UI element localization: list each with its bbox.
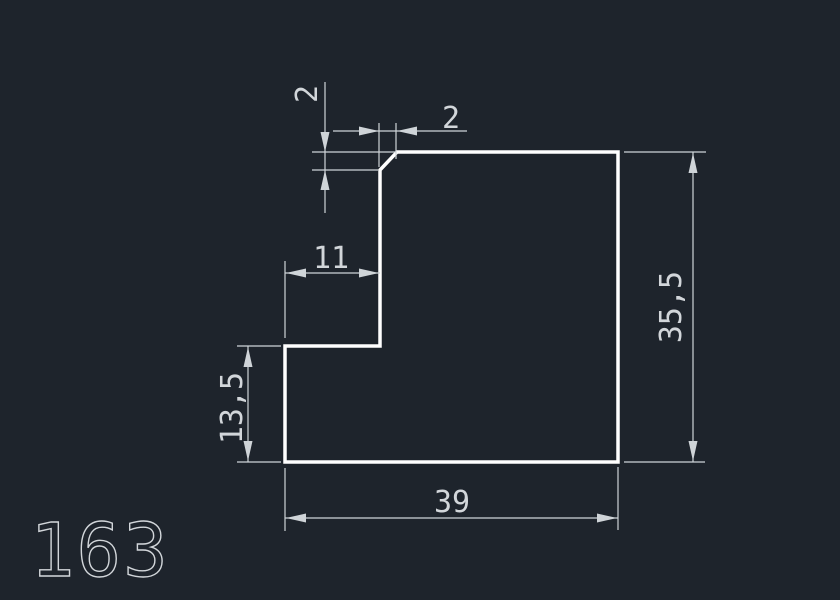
dim-label-chamfer-width[interactable]: 2: [442, 101, 460, 136]
part-number[interactable]: 163: [30, 508, 170, 594]
dim-label-overall-height[interactable]: 35,5: [654, 271, 689, 343]
dim-label-overall-width[interactable]: 39: [434, 485, 470, 520]
dim-label-chamfer-height[interactable]: 2: [290, 85, 325, 103]
dim-label-step-width[interactable]: 11: [313, 241, 349, 276]
cad-drawing-canvas: 2 2 11 13,5 35,5 39 163: [0, 0, 840, 600]
part-number-group: 163: [30, 508, 170, 594]
dim-label-step-height[interactable]: 13,5: [215, 372, 250, 444]
